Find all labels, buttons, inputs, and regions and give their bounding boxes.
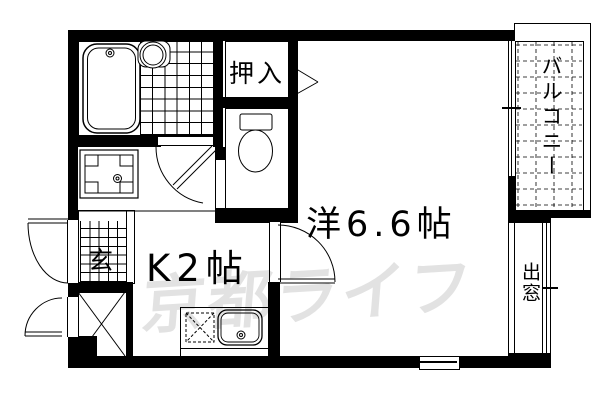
floorplan: 押入 洋6.6帖 K2帖 玄 バルコニー 出窓 京都ライフ <box>0 0 600 400</box>
entrance-step-line <box>126 210 127 282</box>
bay-window-tick <box>542 287 558 289</box>
wall-bottom-right-span <box>458 356 512 368</box>
service-door-swing <box>25 298 62 336</box>
wall-top <box>68 30 515 41</box>
toilet-room-outline <box>225 108 289 209</box>
wall-bottom-left-span <box>68 356 419 368</box>
bottom-window <box>419 356 460 370</box>
wall-utility-right <box>126 282 133 358</box>
wall-bay-bottom <box>508 353 551 368</box>
wall-bathroom-bottom <box>68 135 161 147</box>
service-door-opening <box>67 297 79 337</box>
front-door-opening <box>67 220 79 283</box>
toilet-door-opening <box>215 160 226 208</box>
watermark-text: 京都ライフ <box>139 236 478 347</box>
wall-bathroom-right <box>213 30 223 147</box>
entrance-label: 玄 <box>88 241 113 277</box>
washing-machine-pan <box>80 150 138 198</box>
bottom-window-center-line <box>420 361 457 363</box>
front-door-swing <box>28 219 68 283</box>
bath-door-swing <box>156 146 216 203</box>
balcony-label: バルコニー <box>536 55 566 195</box>
wall-toilet-right <box>288 41 298 223</box>
pan-drain-icon <box>114 175 122 183</box>
kitchen-counter-front-line <box>180 348 268 349</box>
bath-door-opening <box>158 136 213 146</box>
closet-label: 押入 <box>225 54 289 90</box>
wall-balcony-bottom <box>514 210 590 218</box>
wall-toilet-bottom <box>215 208 298 223</box>
bay-window-inner-edge <box>508 223 515 353</box>
wall-toilet-left-post <box>215 147 226 160</box>
wall-left-upper <box>68 30 78 220</box>
wall-closet-bottom <box>217 97 298 108</box>
wall-entrance-bottom <box>68 282 133 292</box>
bathroom-outline <box>78 41 214 136</box>
balcony-window-tick <box>502 107 521 109</box>
bay-window-label: 出窓 <box>517 262 544 322</box>
